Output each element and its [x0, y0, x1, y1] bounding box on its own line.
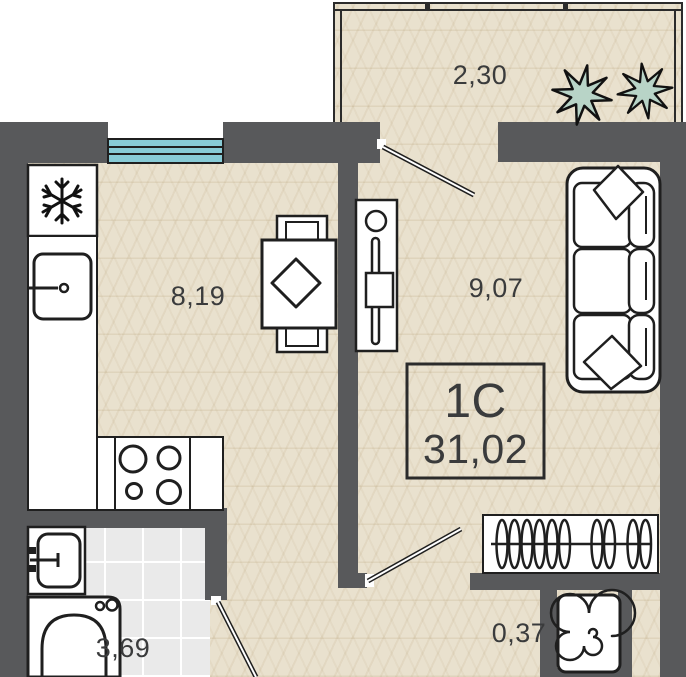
sink-drain	[60, 284, 68, 292]
window-glass	[108, 139, 223, 163]
kitchen-sink	[28, 254, 91, 319]
wall-right	[660, 122, 686, 677]
floor-plan: 2,30 8,19 9,07 3,69 0,37 1С 31,02	[0, 0, 686, 677]
tub-tap	[107, 600, 118, 611]
wall-top-kitchen-right	[223, 122, 380, 163]
bathroom-area-label: 3,69	[78, 633, 168, 664]
tv-cabinet	[356, 200, 397, 351]
glazing-mullion	[564, 3, 567, 10]
plan-total-area: 31,02	[407, 426, 544, 473]
sofa-back	[629, 249, 654, 313]
wall-bathroom-right	[205, 528, 227, 600]
living-area-label: 9,07	[451, 273, 541, 304]
stove	[115, 437, 190, 510]
glazing-mullion	[426, 3, 429, 10]
wall-top-living	[498, 122, 686, 162]
chair	[277, 327, 327, 352]
kitchen-area-label: 8,19	[153, 281, 243, 312]
chair	[277, 216, 327, 242]
plan-type-label: 1С	[407, 374, 544, 429]
wall-left	[0, 122, 28, 677]
radiator	[483, 515, 658, 573]
plan-graphics	[0, 0, 686, 677]
sofa	[567, 166, 660, 392]
wall-top-kitchen-left	[0, 122, 108, 163]
wall-below-radiator	[470, 573, 660, 590]
sofa-seat	[574, 249, 631, 313]
balcony-area-label: 2,30	[435, 60, 525, 91]
kitchen-window	[108, 122, 223, 163]
plant-icon	[547, 52, 683, 129]
niche-area-label: 0,37	[474, 618, 564, 649]
bathroom-sink	[28, 527, 85, 594]
dining-set	[262, 216, 336, 352]
tub-tap	[96, 602, 104, 610]
fridge	[28, 165, 97, 236]
window-outside-gap	[108, 122, 223, 140]
